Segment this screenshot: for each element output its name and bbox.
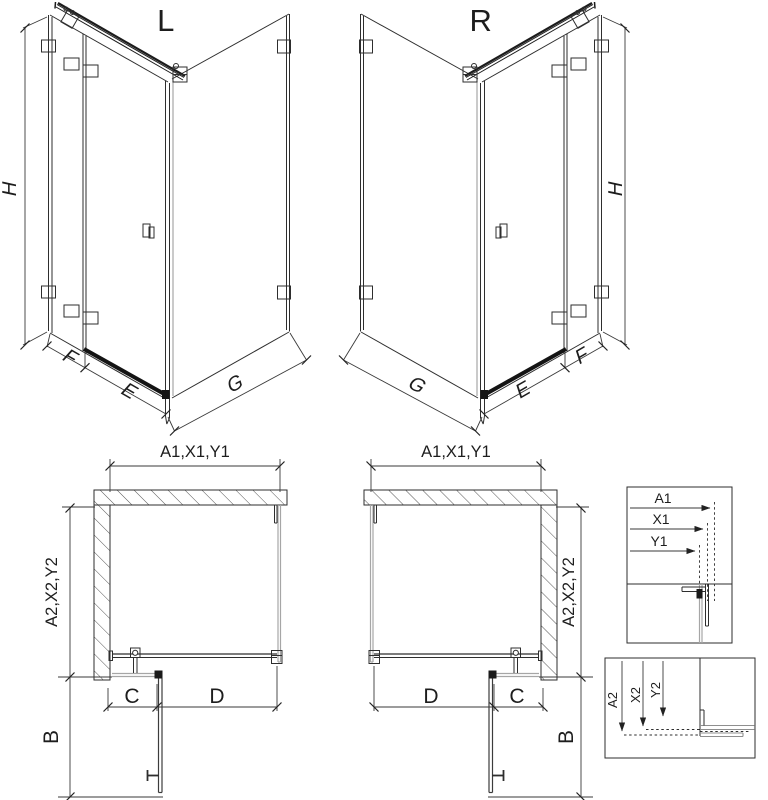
plan-swing-b-left: B — [40, 730, 63, 744]
plan-swing-b-right: B — [555, 730, 578, 744]
wall-hatch-top-left-plan — [94, 490, 287, 505]
detail-x1-label: X1 — [652, 511, 669, 527]
version-label-left: L — [157, 3, 175, 38]
dim-label-height-left: H — [0, 179, 21, 198]
plan-depth-dim-right: A2,X2,Y2 — [560, 557, 578, 627]
plan-geometry-right — [364, 459, 593, 800]
plan-segment-c-left: C — [124, 685, 139, 708]
wall-hatch-side-left-plan — [94, 505, 110, 680]
drawing-sheet: L H F E G R H F E G A1,X1,Y1 A2,X2,Y2 C … — [0, 0, 768, 800]
detail-a1-label: A1 — [654, 490, 671, 506]
plan-width-dim-right: A1,X1,Y1 — [421, 443, 491, 461]
detail-box-width: A1 X1 Y1 — [627, 487, 732, 643]
dim-label-door-right: E — [514, 376, 532, 404]
iso-view-right: R H F E G — [339, 2, 630, 436]
plan-segment-d-left: D — [209, 685, 224, 708]
detail-a2-label: A2 — [605, 692, 620, 708]
iso-enclosure-right — [339, 2, 630, 436]
dim-label-height-right: H — [605, 179, 627, 198]
wall-hatch-side-right-plan — [541, 505, 557, 680]
detail-y1-label: Y1 — [650, 533, 667, 549]
iso-view-left: L H F E G — [0, 2, 311, 436]
plan-segment-c-right: C — [509, 685, 524, 708]
dim-label-fixed-left: F — [57, 346, 82, 369]
drawing-canvas: L H F E G R H F E G A1,X1,Y1 A2,X2,Y2 C … — [0, 0, 768, 800]
detail-box-depth: A2 X2 Y2 — [605, 658, 755, 758]
plan-view-right: A1,X1,Y1 A2,X2,Y2 D C B — [364, 443, 593, 800]
version-label-right: R — [470, 3, 493, 38]
dim-label-fixed-right: F — [573, 343, 590, 370]
plan-width-dim-left: A1,X1,Y1 — [160, 443, 230, 461]
plan-geometry-left — [58, 459, 287, 800]
plan-view-left: A1,X1,Y1 A2,X2,Y2 C D B — [40, 443, 287, 800]
iso-enclosure-left — [21, 2, 312, 436]
dim-label-door-left: E — [116, 380, 142, 403]
detail-y2-label: Y2 — [648, 682, 663, 698]
plan-depth-dim-left: A2,X2,Y2 — [43, 557, 61, 627]
plan-segment-d-right: D — [423, 685, 438, 708]
wall-hatch-top-right-plan — [364, 490, 557, 505]
detail-x2-label: X2 — [628, 687, 643, 703]
